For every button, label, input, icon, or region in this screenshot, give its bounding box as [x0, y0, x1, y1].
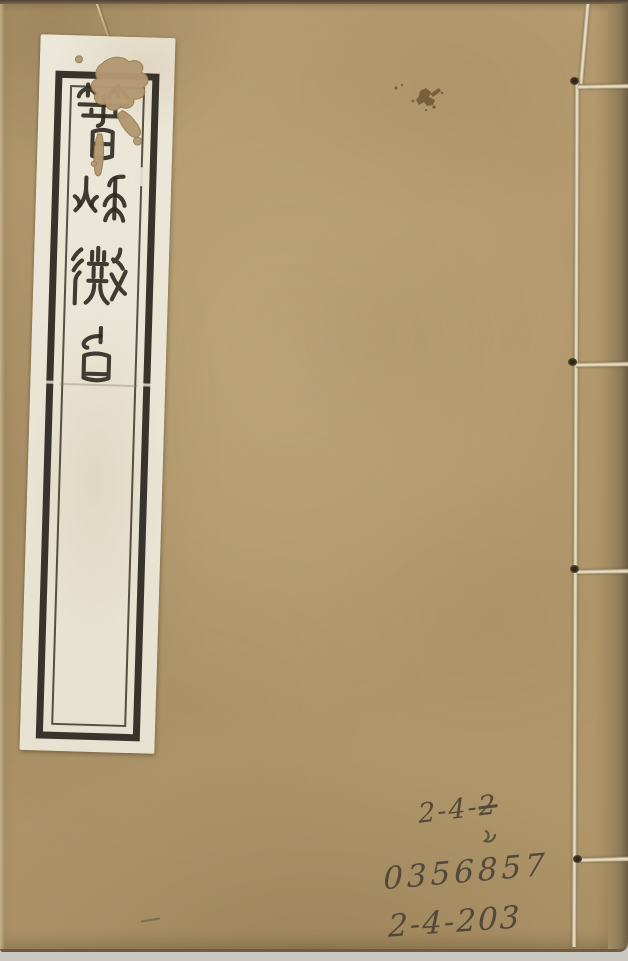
- handwritten-accession-number: 0356857: [383, 847, 548, 898]
- binding-thread-horizontal-1: [578, 84, 628, 90]
- handwritten-shelfmark-new: 2-4-203: [388, 899, 522, 944]
- top-edge-shadow: [0, 0, 628, 4]
- cover-left-highlight: [0, 3, 5, 949]
- fore-edge-tint: [594, 3, 608, 949]
- stitch-hole-4: [573, 855, 582, 863]
- book-cover: 2-4-2 0356857 2-4-203: [0, 3, 628, 952]
- binding-thread-horizontal-3: [577, 569, 628, 575]
- page-edge-dark-strip: [620, 3, 628, 949]
- shelfmark-old-struck-digit: 2: [478, 789, 499, 822]
- shelfmark-old-prefix: 2-4-: [417, 791, 479, 829]
- correction-mark: [480, 829, 502, 849]
- page-edge-strip: [608, 3, 620, 949]
- ink-splatter-stain: [390, 79, 460, 124]
- binding-thread-top-segment: [578, 0, 591, 87]
- stitch-hole-2: [568, 358, 577, 366]
- binding-thread-vertical: [571, 79, 579, 947]
- pencil-dash-mark: [141, 918, 160, 923]
- stitch-hole-1: [570, 77, 579, 85]
- binding-thread-horizontal-2: [576, 362, 628, 368]
- handwritten-shelfmark-old: 2-4-2: [417, 789, 498, 830]
- stitch-hole-3: [570, 565, 579, 573]
- photo-backdrop: 2-4-2 0356857 2-4-203: [0, 0, 628, 961]
- title-label: [19, 34, 175, 754]
- label-damage-stain: [19, 34, 175, 754]
